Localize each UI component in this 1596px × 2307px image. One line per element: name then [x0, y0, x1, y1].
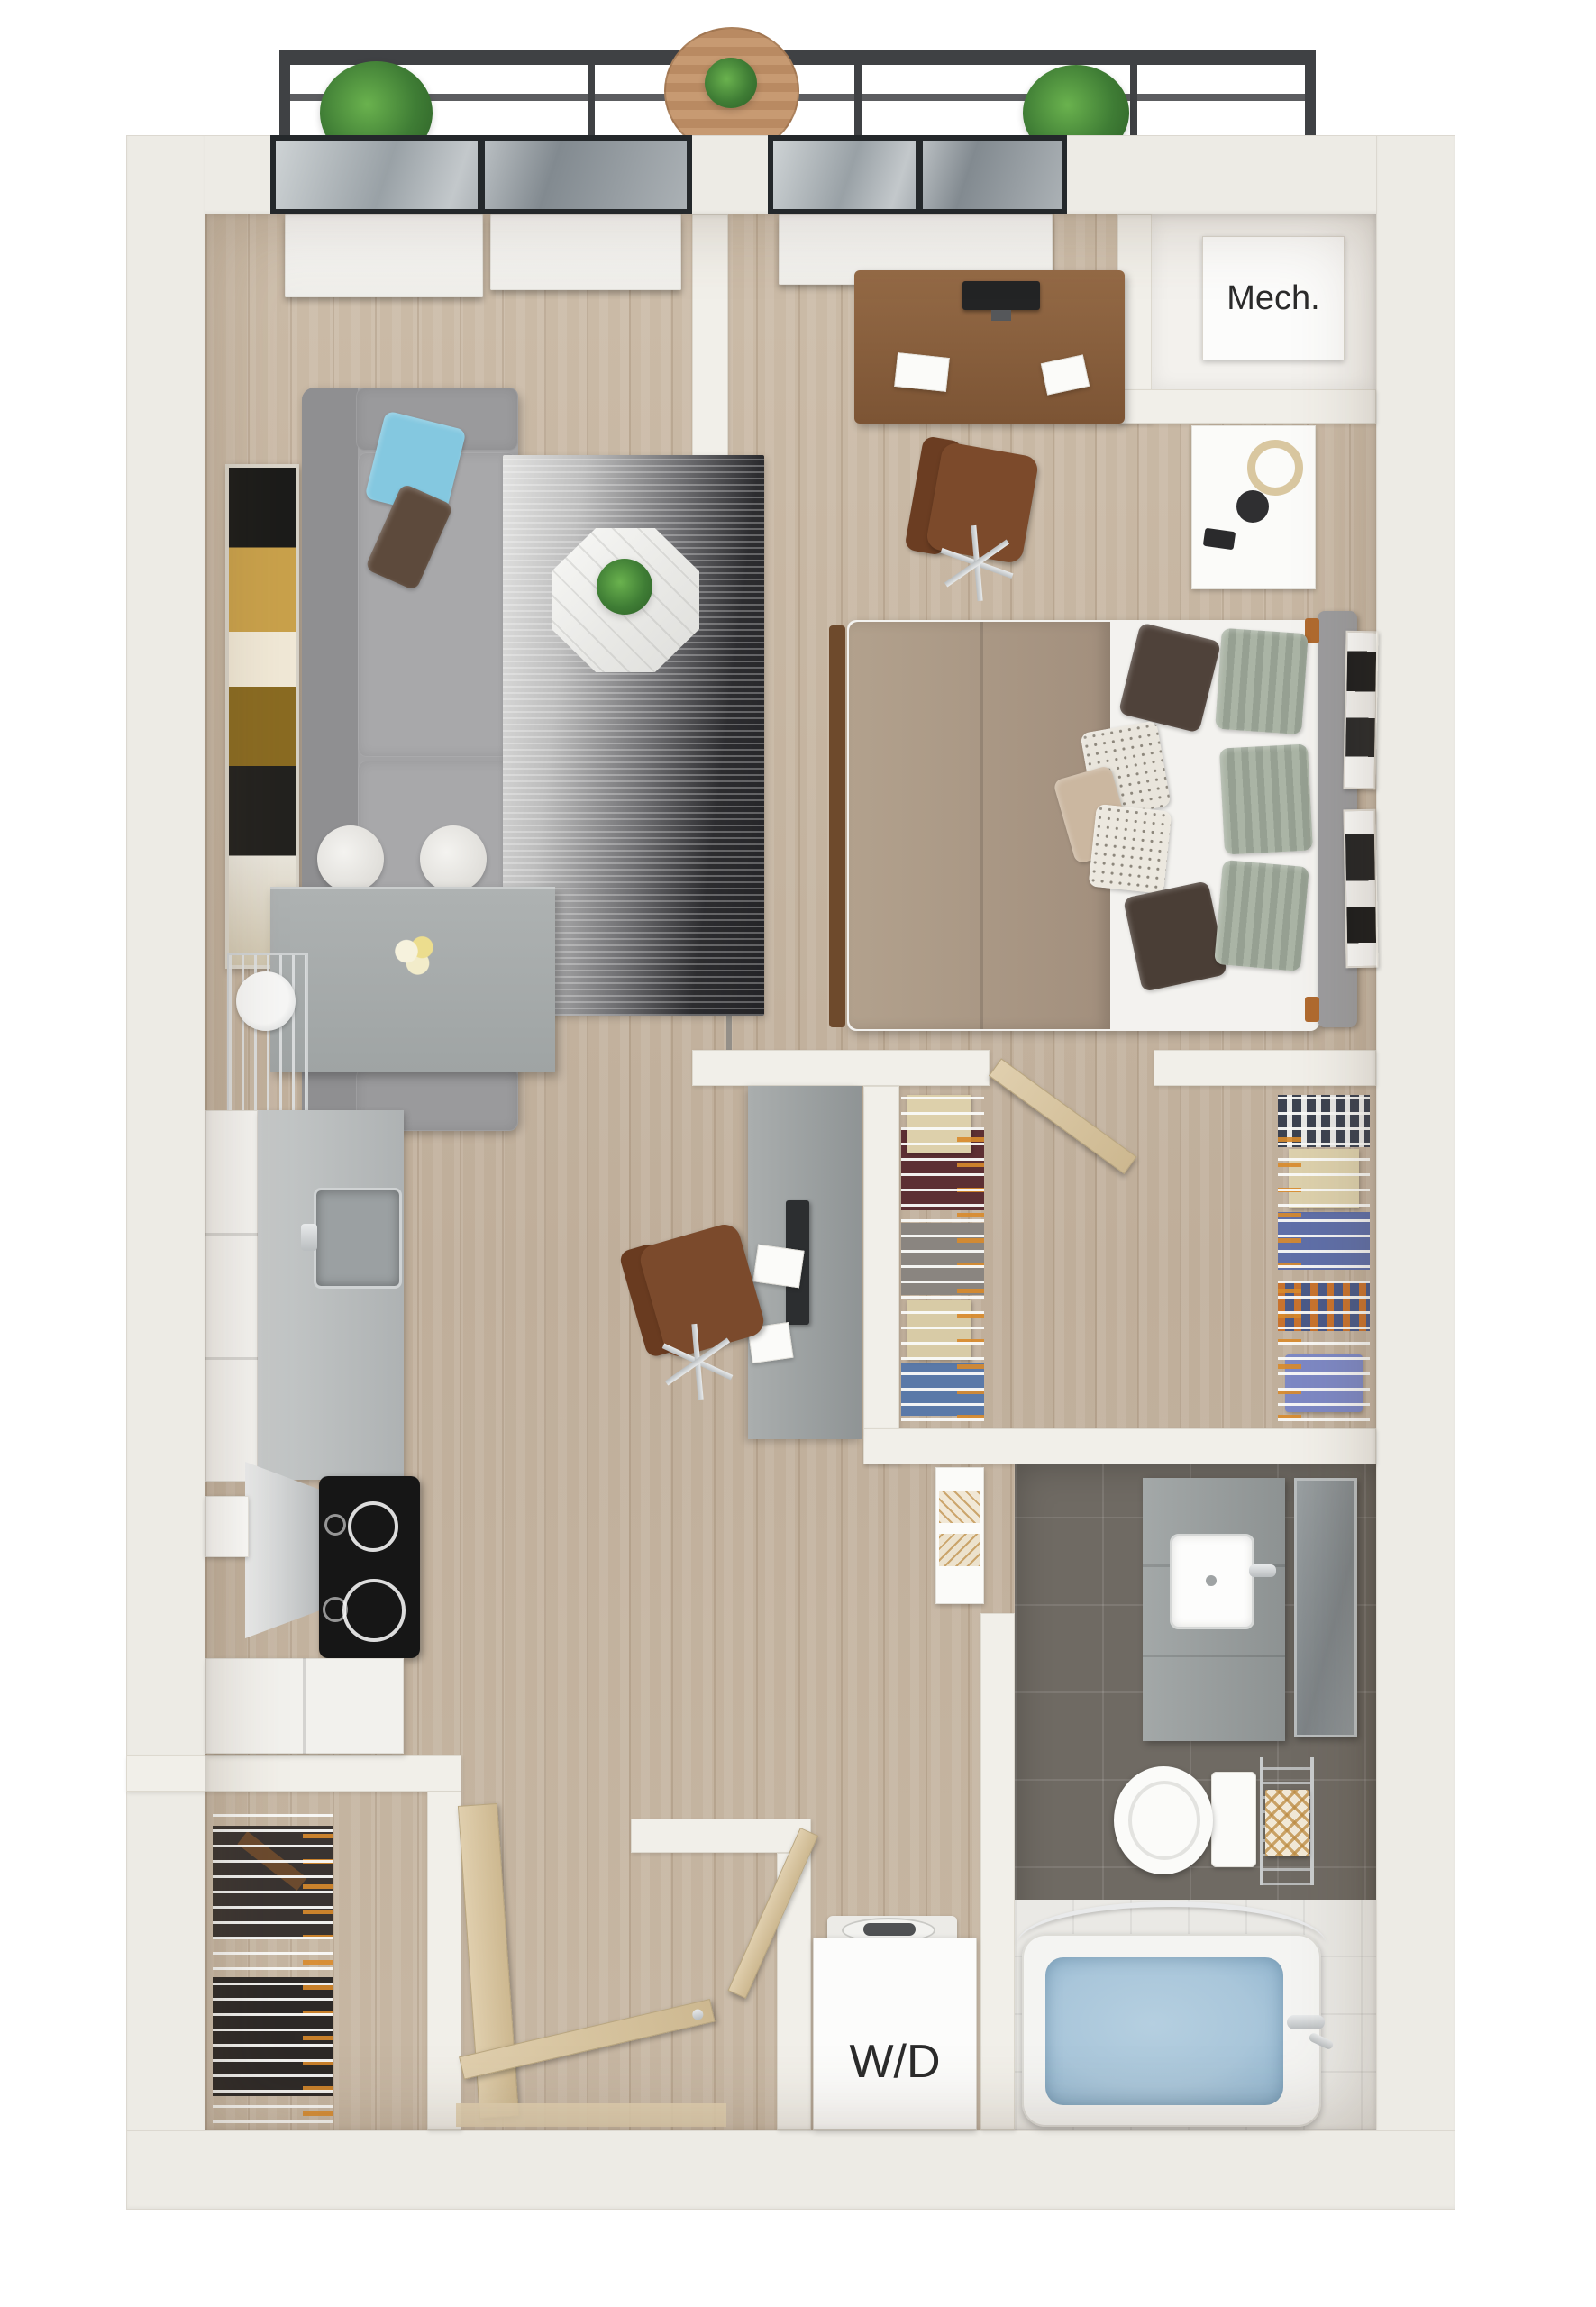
toilet-seat: [1128, 1781, 1200, 1860]
bedroom-wall-art-1: [1343, 631, 1378, 790]
washer-dryer-label: W/D: [849, 2035, 940, 2089]
bedroom-window: [768, 135, 1067, 214]
kitchen-wall-box: [205, 1496, 249, 1557]
refrigerator-door-seam: [303, 1658, 306, 1754]
coat-closet-shelving: [213, 1801, 333, 2123]
vanity-sink-drain: [1206, 1575, 1217, 1586]
bedroom-wall-art-2: [1343, 809, 1378, 969]
bed-footboard: [829, 625, 845, 1027]
mech-room-label: Mech.: [1227, 279, 1319, 318]
linen-towel-1: [939, 1491, 980, 1523]
outer-wall-bottom: [126, 2130, 1455, 2210]
closet-shelving-right: [1278, 1095, 1370, 1421]
living-roller-shade-1: [285, 214, 483, 297]
cooktop-burner-1: [348, 1501, 398, 1552]
nightstand-ring-lamp: [1247, 440, 1303, 496]
living-room-glass-doors: [270, 135, 692, 214]
wall-bedroom-bottom-right: [1154, 1050, 1376, 1086]
living-window-mullion: [478, 141, 485, 209]
bed-pillow-sage-1: [1215, 628, 1309, 734]
cooktop-burner-3: [324, 1514, 346, 1536]
outer-wall-left: [126, 135, 205, 2210]
entry-door-handle: [691, 2008, 704, 2020]
kitchen-peninsula-counter: [270, 887, 555, 1072]
wall-coat-closet-right: [427, 1792, 461, 2130]
entry-threshold: [456, 2103, 726, 2127]
kitchen-cabinet-seam-2: [205, 1357, 258, 1360]
towel-patterned: [1265, 1790, 1309, 1856]
bedroom-chair-seat: [925, 442, 1039, 565]
bathtub-faucet: [1287, 2015, 1325, 2029]
washer-lid-slot: [863, 1923, 916, 1936]
washer-dryer-unit: W/D: [813, 1938, 977, 2130]
kitchen-counter-run: [258, 1110, 404, 1480]
kitchen-faucet: [301, 1224, 317, 1251]
kitchen-counter-flowers: [393, 935, 438, 975]
balcony-railing-top: [279, 50, 1316, 65]
closet-right-wire-rack: [1278, 1095, 1370, 1421]
linen-towel-2: [939, 1534, 980, 1566]
vanity-faucet: [1249, 1564, 1276, 1577]
coffee-table-plant: [597, 559, 652, 615]
balcony-plant-center: [705, 58, 757, 108]
bar-stool-1: [317, 825, 384, 892]
bed-pillow-patterned-2: [1088, 804, 1172, 894]
wall-coat-closet-top: [126, 1755, 461, 1792]
toilet-tank: [1211, 1772, 1256, 1867]
kitchen-shelf-disc: [236, 971, 296, 1031]
wall-hall-stub: [631, 1819, 811, 1853]
wall-closet-bottom: [863, 1428, 1376, 1464]
bathroom-mirror: [1294, 1478, 1357, 1737]
kitchen-cabinet-column: [205, 1110, 258, 1482]
desk-paper-1: [894, 352, 950, 392]
work-nook-paper-1: [752, 1245, 804, 1289]
closet-shelving-left: [901, 1095, 984, 1421]
living-roller-shade-2: [490, 214, 681, 290]
nightstand-lamp-shade: [1236, 490, 1269, 523]
bathtub-water: [1045, 1957, 1283, 2105]
outer-wall-right: [1376, 135, 1455, 2210]
bed-pillow-sage-3: [1214, 860, 1309, 971]
range-hood: [245, 1462, 321, 1638]
bed: [829, 611, 1379, 1035]
kitchen-cabinet-seam-1: [205, 1233, 258, 1236]
bed-headboard-wood-bottom: [1305, 997, 1319, 1022]
wall-mech-bottom: [1117, 389, 1376, 424]
cooktop-burner-2: [342, 1579, 406, 1642]
coat-closet-wire-rack: [213, 1801, 333, 2123]
bedroom-monitor-stand: [991, 310, 1011, 321]
kitchen-sink: [314, 1188, 402, 1289]
bar-stool-2: [420, 825, 487, 892]
vanity-drawer-seam-2: [1143, 1655, 1285, 1657]
cooktop-burner-4: [323, 1597, 348, 1622]
bedroom-monitor: [962, 281, 1040, 310]
mech-room-label-box: Mech.: [1202, 236, 1345, 360]
closet-left-wire-rack: [901, 1095, 984, 1421]
wall-closet-left: [863, 1086, 899, 1464]
bedroom-window-mullion: [916, 141, 923, 209]
bed-pillow-sage-2: [1219, 744, 1313, 855]
wall-bedroom-bottom-left: [692, 1050, 990, 1086]
floor-plan-canvas: Mech.: [0, 0, 1596, 2307]
wall-bathroom-left: [980, 1613, 1015, 2130]
bed-comforter-fold: [980, 622, 983, 1029]
